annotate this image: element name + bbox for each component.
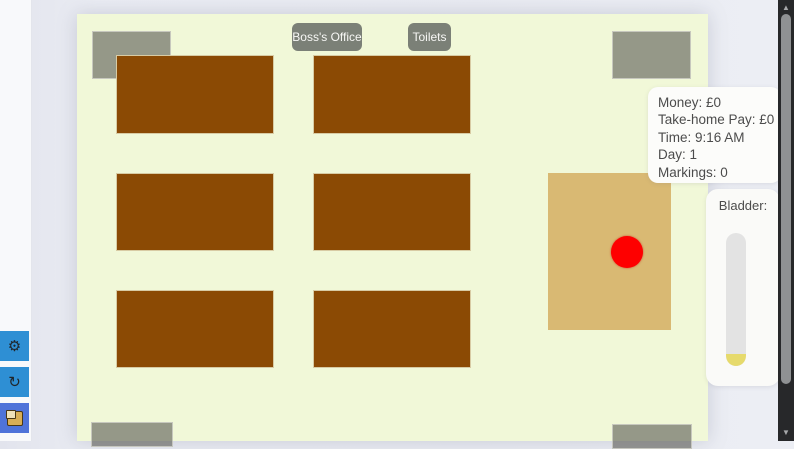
- boss-office-label: Boss's Office: [292, 23, 362, 51]
- bladder-label: Bladder:: [706, 189, 780, 213]
- stat-take-home-pay: Take-home Pay: £0: [658, 111, 781, 128]
- vertical-scrollbar[interactable]: ▲ ▼: [778, 0, 794, 441]
- package-icon: [7, 411, 23, 426]
- grey-zone-bottom-right: [612, 424, 692, 449]
- bladder-panel: Bladder:: [706, 189, 780, 386]
- bladder-meter: [726, 233, 746, 366]
- hook-icon: ↻: [8, 375, 21, 390]
- player-marker: [611, 236, 643, 268]
- stat-time: Time: 9:16 AM: [658, 129, 781, 146]
- desk: [313, 173, 471, 251]
- stat-money: Money: £0: [658, 94, 781, 111]
- grey-zone-top-right: [612, 31, 691, 79]
- grey-zone-bottom-left: [91, 422, 173, 447]
- toilets-label: Toilets: [408, 23, 451, 51]
- bladder-meter-fill: [726, 354, 746, 366]
- desk: [116, 55, 274, 134]
- scrollbar-thumb[interactable]: [781, 14, 791, 384]
- stat-markings: Markings: 0: [658, 164, 781, 181]
- desk: [313, 55, 471, 134]
- gear-icon: ⚙: [8, 339, 21, 354]
- stat-day: Day: 1: [658, 146, 781, 163]
- desk: [116, 173, 274, 251]
- settings-button[interactable]: ⚙: [0, 331, 29, 361]
- scrollbar-up-icon[interactable]: ▲: [778, 1, 794, 14]
- package-button[interactable]: [0, 403, 29, 433]
- scrollbar-down-icon[interactable]: ▼: [778, 426, 794, 439]
- stats-panel: Money: £0 Take-home Pay: £0 Time: 9:16 A…: [648, 87, 781, 183]
- left-rail: ⚙ ↻: [0, 0, 32, 441]
- tan-rug: [548, 173, 671, 330]
- hook-button[interactable]: ↻: [0, 367, 29, 397]
- game-area[interactable]: Boss's Office Toilets: [77, 14, 708, 441]
- desk: [313, 290, 471, 368]
- desk: [116, 290, 274, 368]
